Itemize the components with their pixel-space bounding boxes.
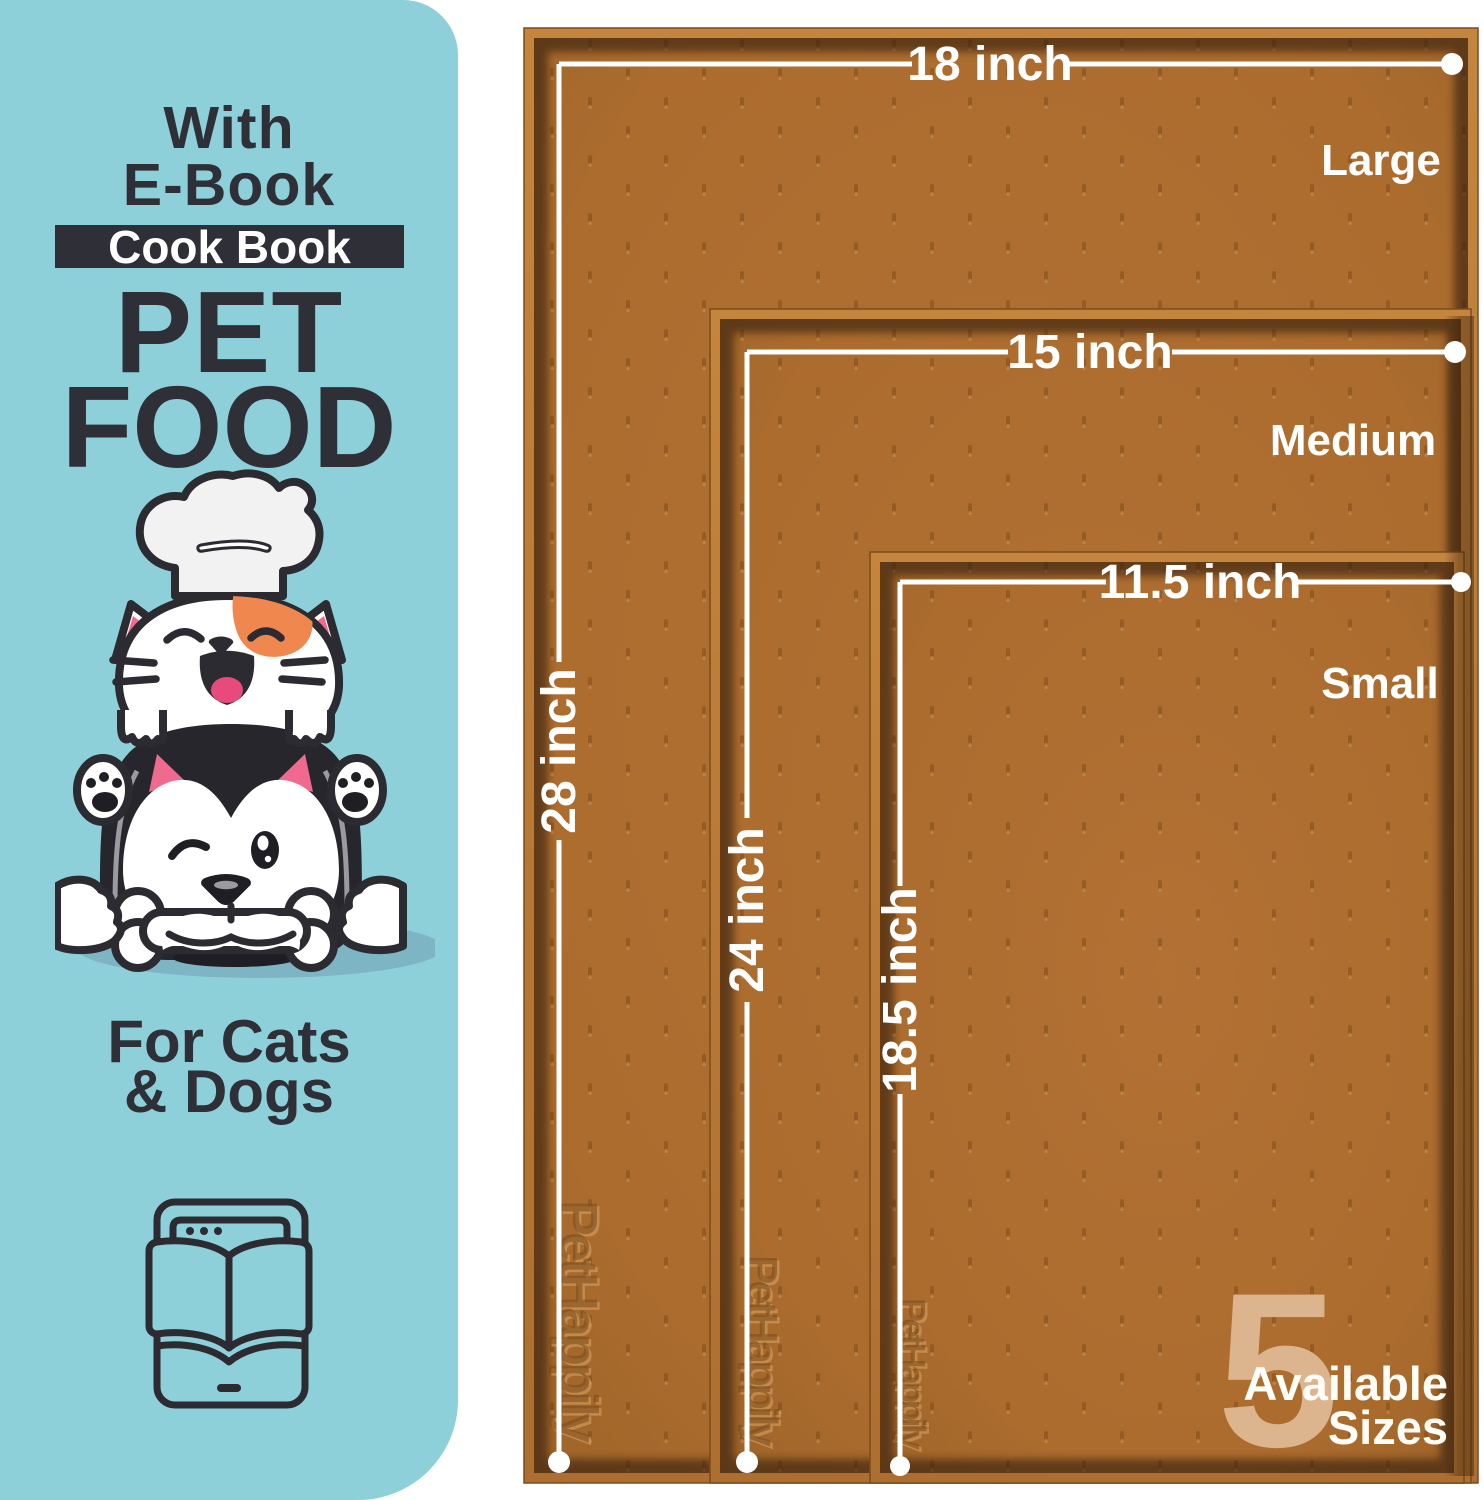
svg-text:15 inch: 15 inch xyxy=(1007,326,1172,379)
svg-text:18.5 inch: 18.5 inch xyxy=(874,887,927,1092)
svg-text:PetHappily: PetHappily xyxy=(737,1255,786,1448)
svg-text:11.5 inch: 11.5 inch xyxy=(1099,556,1302,609)
svg-text:18 inch: 18 inch xyxy=(907,38,1072,91)
svg-text:Small: Small xyxy=(1321,659,1438,708)
svg-text:28 inch: 28 inch xyxy=(533,668,586,833)
svg-text:Large: Large xyxy=(1321,136,1441,185)
svg-text:24 inch: 24 inch xyxy=(721,827,774,992)
svg-text:Sizes: Sizes xyxy=(1328,1401,1448,1454)
svg-text:Medium: Medium xyxy=(1270,416,1436,465)
